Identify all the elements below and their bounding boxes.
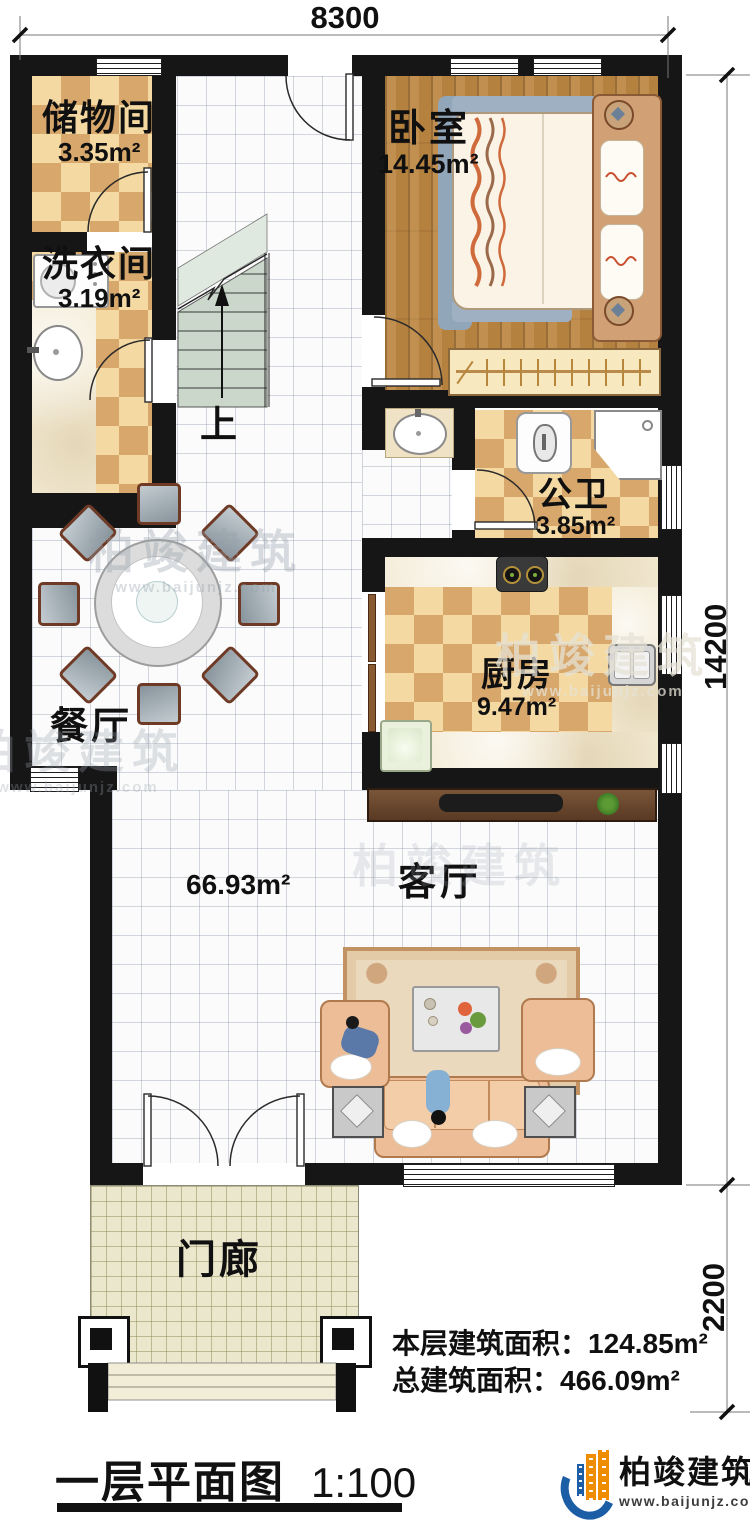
wardrobe-closet: [448, 348, 661, 396]
kitchen-sink: [608, 644, 656, 686]
wall-bath-kitchen: [385, 538, 658, 557]
person-figure: [338, 1014, 382, 1066]
tv-cabinet: [367, 788, 657, 822]
window-bedroom-north-1: [450, 57, 519, 76]
dim-top: 8300: [270, 2, 420, 33]
room-label-dining: 餐厅: [50, 708, 132, 746]
bed: [452, 112, 602, 310]
dining-chair: [137, 683, 181, 725]
person-figure: [420, 1068, 456, 1128]
burner-icon: [526, 566, 544, 584]
stove: [496, 556, 548, 592]
window-bathroom-east: [660, 465, 682, 530]
stairs-up-label: 上: [200, 406, 237, 443]
wall-left: [10, 55, 32, 768]
window-bedroom-north-2: [533, 57, 602, 76]
dining-chair: [238, 582, 280, 626]
dining-chair: [38, 582, 80, 626]
total-area-note: 总建筑面积：466.09m²: [392, 1367, 680, 1395]
top-door-opening: [288, 55, 352, 76]
faucet-icon: [27, 347, 39, 353]
laundry-door-opening: [152, 340, 176, 403]
drawing-title-row: 一层平面图 1:100: [55, 1446, 416, 1510]
room-label-porch: 门廊: [176, 1240, 262, 1280]
faucet-icon: [415, 409, 421, 417]
hall-area-label: 66.93m²: [186, 871, 290, 899]
window-storage-north: [96, 57, 162, 76]
window-dining-southwest: [30, 766, 79, 792]
side-table: [332, 1086, 384, 1138]
brand-logo: 柏竣建筑 www.baijunjz.com: [561, 1450, 746, 1520]
room-area-bathroom: 3.85m²: [536, 514, 615, 539]
dining-table: [94, 539, 222, 667]
nightstand-ornament: [604, 296, 634, 326]
bathroom-door-opening: [452, 470, 475, 530]
room-area-kitchen: 9.47m²: [477, 695, 556, 720]
bedroom-door-opening: [362, 315, 385, 387]
dim-right-main: 14200: [700, 604, 731, 690]
room-area-bedroom: 14.45m²: [378, 151, 479, 178]
window-living-south: [403, 1163, 615, 1187]
porch-column: [78, 1316, 130, 1368]
flowers-icon: [460, 1022, 472, 1034]
floor-area-note: 本层建筑面积：124.85m²: [392, 1330, 708, 1358]
entry-door-opening: [143, 1163, 305, 1185]
title-underline: [57, 1503, 402, 1512]
floor-plan-canvas: 8300 14200 2200 储物间 3.35m² 洗衣间 3.19m² 卧室…: [0, 0, 750, 1530]
kitchen-door-leaf: [368, 664, 376, 732]
room-area-storage: 3.35m²: [58, 139, 140, 165]
room-label-bathroom: 公卫: [538, 478, 610, 512]
kitchen-counter-bottom: [427, 732, 658, 768]
flowers-icon: [458, 1002, 472, 1016]
squat-toilet: [516, 412, 572, 474]
refrigerator: [380, 720, 432, 772]
tv-icon: [439, 794, 563, 812]
brand-name: 柏竣建筑: [619, 1456, 750, 1488]
dining-chair: [137, 483, 181, 525]
window-kitchen-east: [660, 595, 682, 675]
bed-fold-line: [542, 114, 544, 304]
armchair-right: [521, 998, 595, 1082]
coffee-table: [412, 986, 500, 1052]
burner-icon: [503, 566, 521, 584]
flowers-icon: [470, 1012, 486, 1028]
brand-website: www.baijunjz.com: [619, 1494, 750, 1508]
window-corner-east: [660, 743, 682, 794]
drawing-scale: 1:100: [311, 1459, 416, 1507]
nightstand-ornament: [604, 100, 634, 130]
kitchen-door-leaf: [368, 594, 376, 662]
room-label-living: 客厅: [398, 864, 482, 902]
dining-table-glass: [136, 581, 178, 623]
room-label-bedroom: 卧室: [388, 110, 470, 148]
laundry-sink: [33, 325, 83, 381]
dim-right-porch: 2200: [698, 1263, 729, 1332]
bed-pillow: [600, 224, 644, 300]
bed-pillow: [600, 140, 644, 216]
bed-blanket-pattern: [464, 116, 524, 306]
brand-logo-icon: [561, 1450, 615, 1514]
plant-icon: [597, 793, 619, 815]
room-area-laundry: 3.19m²: [58, 285, 140, 311]
drawing-title: 一层平面图: [55, 1446, 285, 1510]
vestibule-basin: [393, 413, 447, 455]
room-label-kitchen: 厨房: [481, 658, 553, 692]
wall-living-left: [90, 790, 112, 1185]
room-label-storage: 储物间: [42, 100, 156, 136]
porch-column: [320, 1316, 372, 1368]
room-label-laundry: 洗衣间: [42, 246, 156, 282]
side-table: [524, 1086, 576, 1138]
